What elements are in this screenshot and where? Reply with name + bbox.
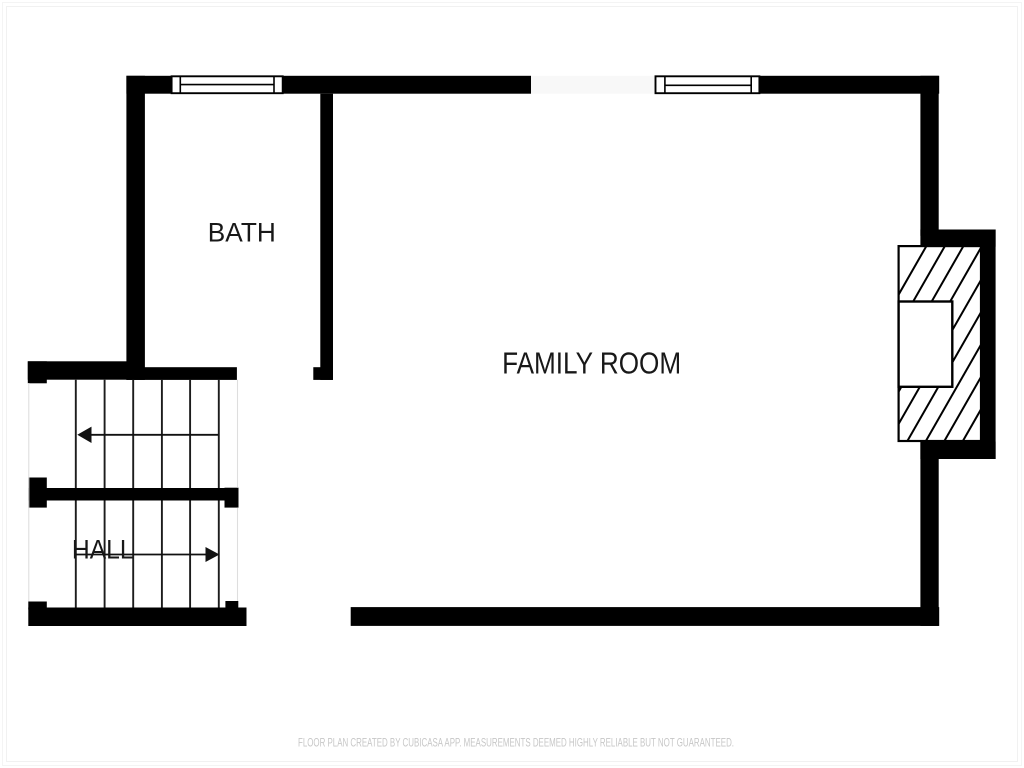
svg-text:BATH: BATH	[208, 218, 276, 248]
svg-text:HALL: HALL	[72, 534, 134, 564]
svg-text:FLOOR PLAN CREATED BY CUBICASA: FLOOR PLAN CREATED BY CUBICASA APP. MEAS…	[298, 736, 734, 750]
svg-text:FAMILY ROOM: FAMILY ROOM	[502, 345, 681, 380]
